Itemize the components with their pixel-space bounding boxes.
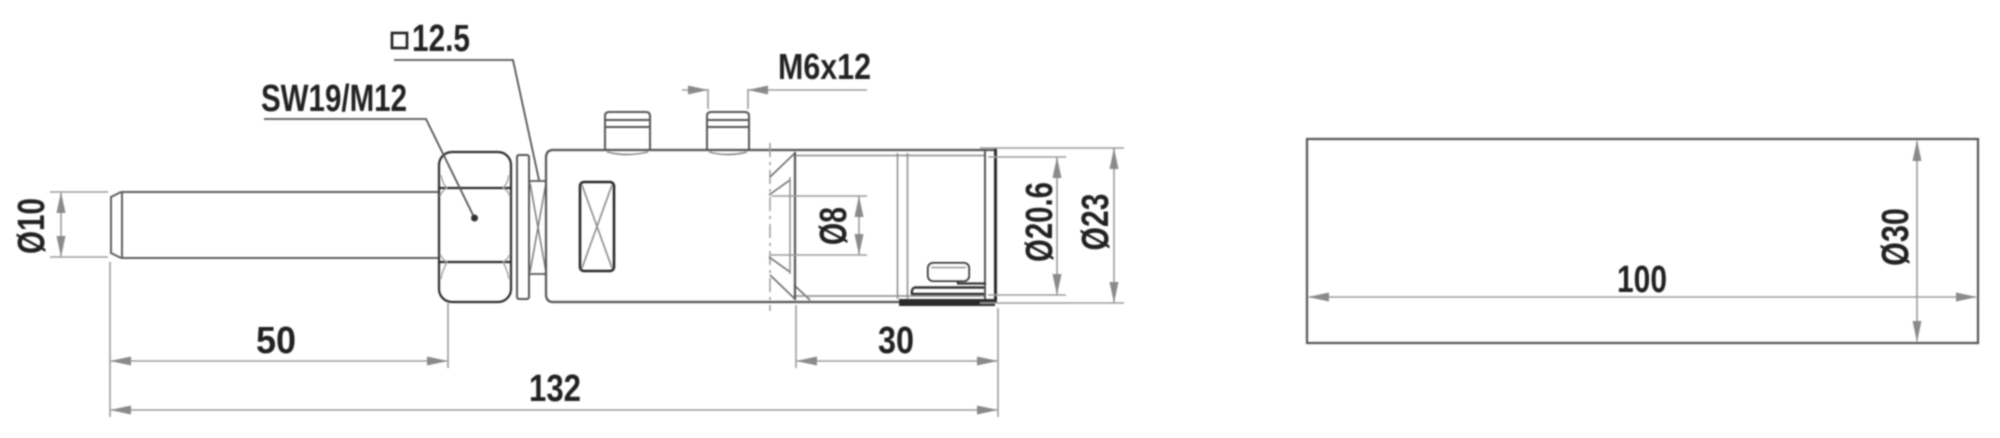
- svg-text:Ø8: Ø8: [813, 207, 855, 245]
- svg-text:132: 132: [529, 368, 581, 410]
- svg-text:50: 50: [256, 320, 296, 362]
- svg-text:Ø30: Ø30: [1875, 208, 1917, 266]
- svg-text:M6x12: M6x12: [778, 46, 871, 87]
- svg-text:30: 30: [878, 320, 914, 362]
- svg-text:12.5: 12.5: [412, 18, 470, 60]
- svg-text:Ø23: Ø23: [1075, 194, 1117, 251]
- svg-text:SW19/M12: SW19/M12: [261, 78, 407, 120]
- svg-text:Ø10: Ø10: [11, 198, 53, 254]
- svg-text:Ø20.6: Ø20.6: [1019, 182, 1061, 262]
- svg-text:100: 100: [1617, 259, 1667, 301]
